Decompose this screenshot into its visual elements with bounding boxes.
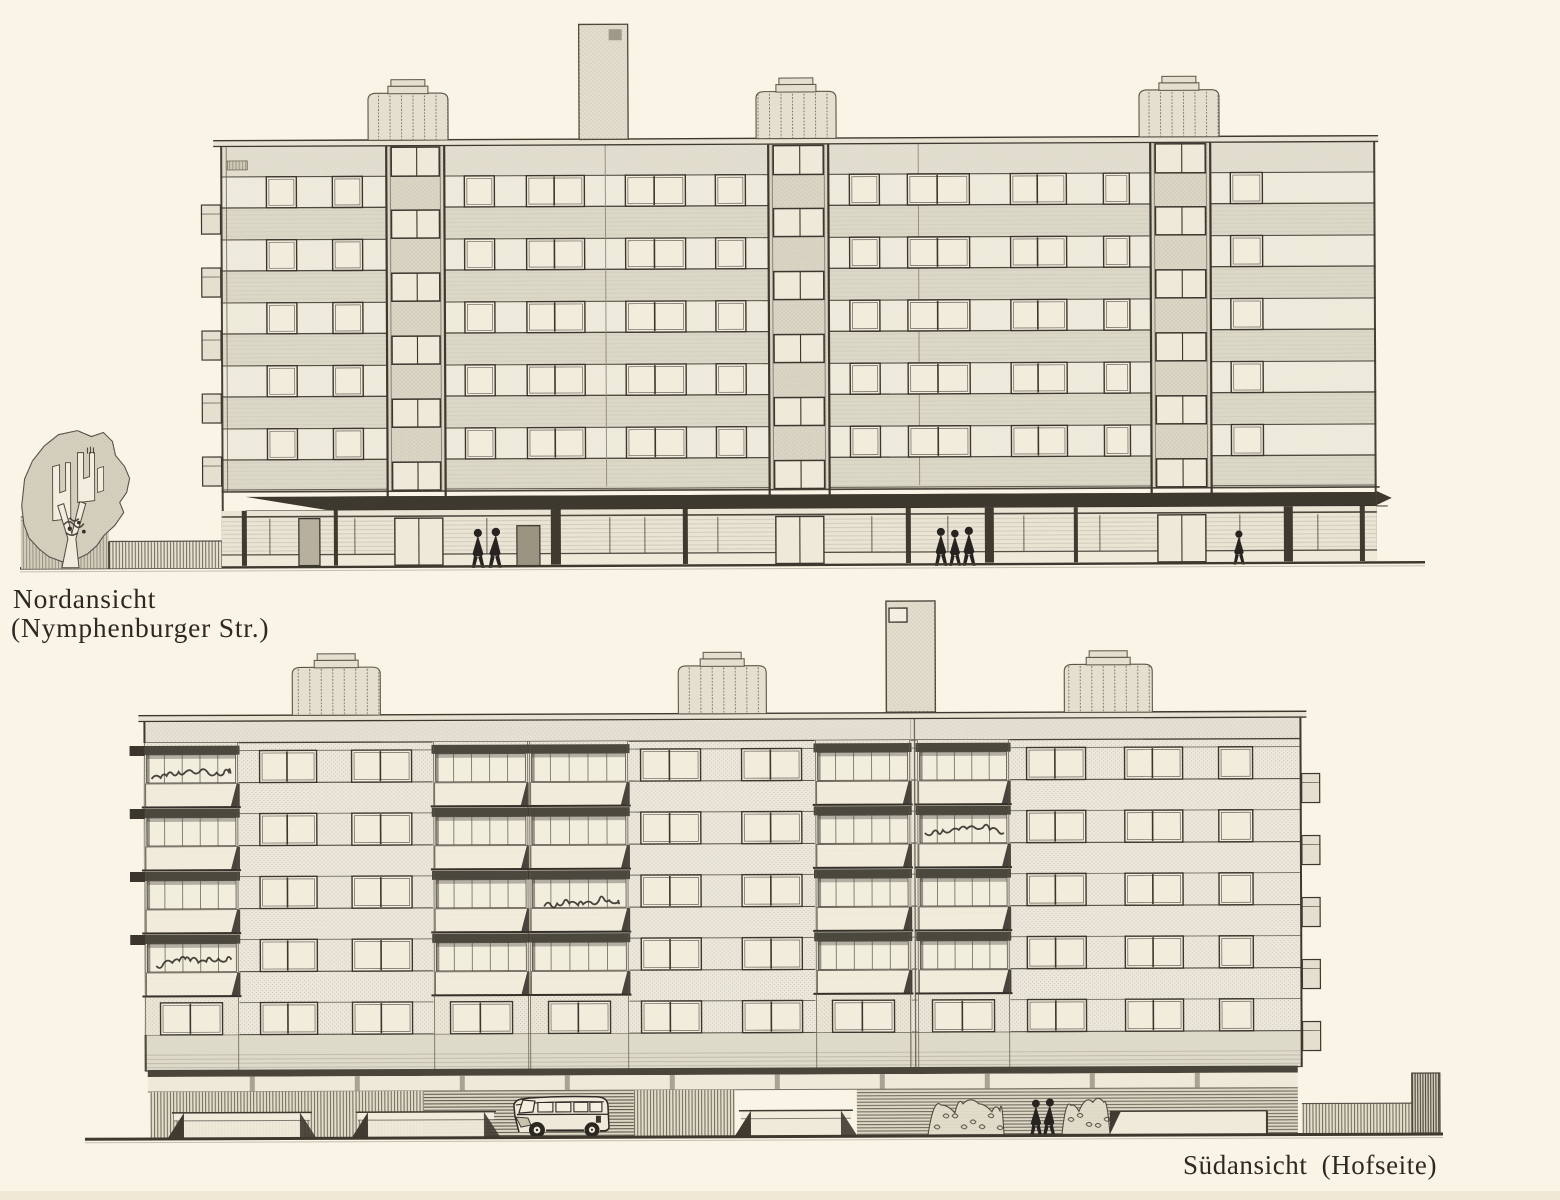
svg-text:Nordansicht: Nordansicht — [13, 583, 156, 614]
svg-text:Südansicht (Hofseite): Südansicht (Hofseite) — [1183, 1150, 1437, 1180]
svg-text:(Nymphenburger Str.): (Nymphenburger Str.) — [11, 612, 269, 643]
